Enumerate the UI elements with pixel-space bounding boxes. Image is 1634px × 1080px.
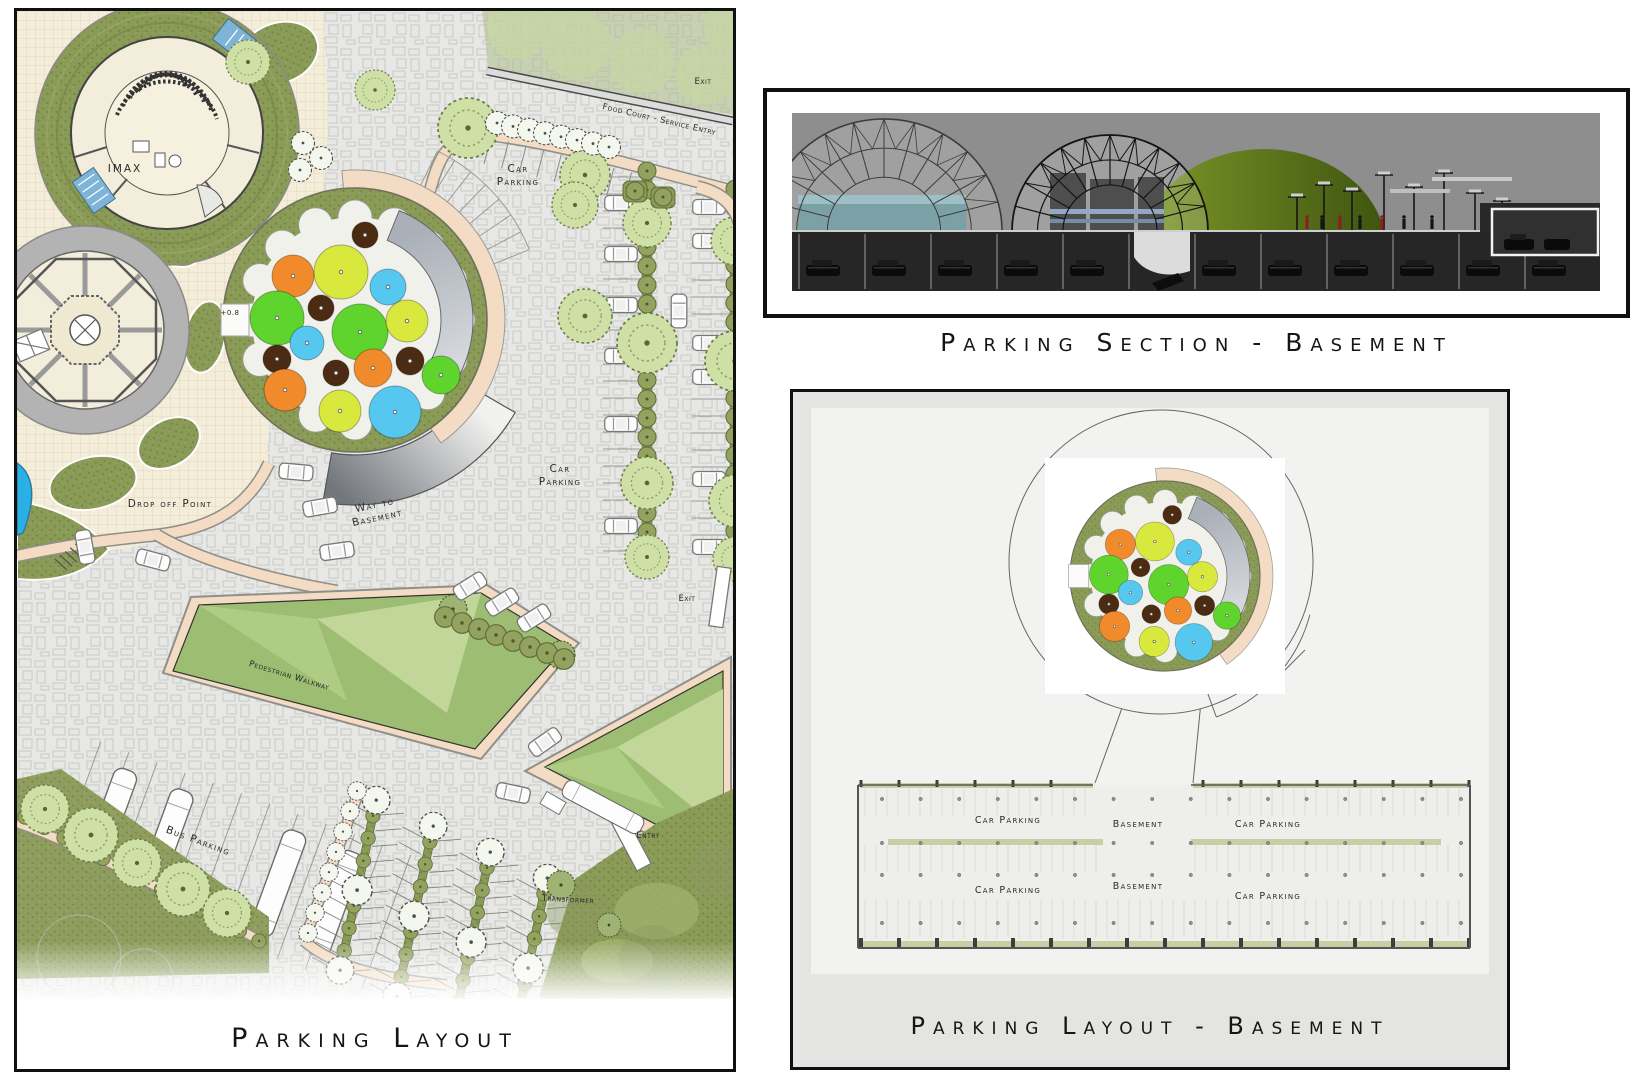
basement-panel: Car Parking Basement Car Parking Car Par… <box>790 389 1510 1070</box>
site-plan-drawing <box>17 11 733 1011</box>
basement-drawing <box>793 392 1507 1067</box>
section-panel <box>763 88 1630 318</box>
section-title: Parking Section - Basement <box>763 328 1630 357</box>
drawing-sheet: { "site_plan": { "title": "Parking Layou… <box>0 0 1634 1080</box>
basement-title: Parking Layout - Basement <box>793 1012 1507 1040</box>
site-plan-panel: IMAX Car Parking Food Court - Service En… <box>14 8 736 1072</box>
section-drawing <box>792 113 1600 291</box>
basement-structure <box>858 780 1471 948</box>
site-plan-title: Parking Layout <box>17 1023 733 1054</box>
